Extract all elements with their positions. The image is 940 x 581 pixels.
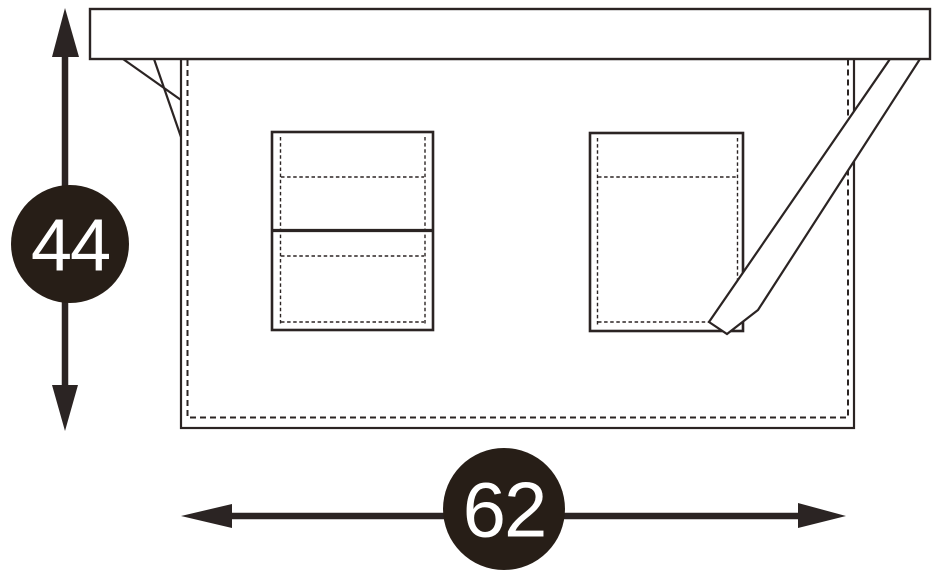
width-value: 62	[463, 466, 546, 554]
diagram-canvas: 44 62	[0, 0, 940, 581]
height-value: 44	[31, 203, 109, 286]
apron-dimension-diagram: 44 62	[0, 0, 940, 581]
waistband	[90, 9, 930, 59]
right-pocket	[590, 133, 743, 331]
right-pocket-outline	[590, 133, 743, 331]
left-pocket	[272, 132, 433, 330]
